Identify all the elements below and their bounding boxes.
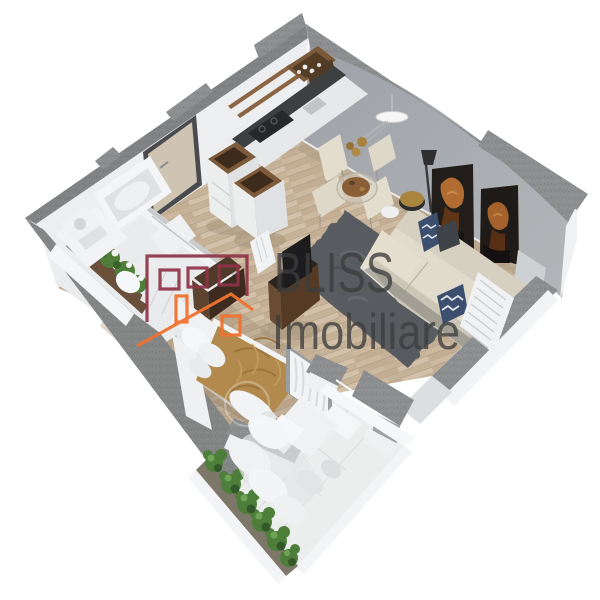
svg-text:BLISS: BLISS: [274, 241, 394, 305]
svg-text:Imobiliare: Imobiliare: [272, 304, 460, 360]
